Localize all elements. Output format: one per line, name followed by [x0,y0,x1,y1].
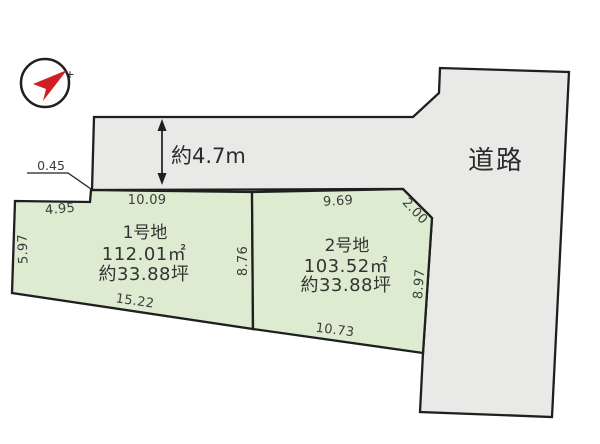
road-label: 道路 [468,146,524,176]
dim-p1-left: 5.97 [15,234,31,265]
parcel-2-name: 2号地 [325,236,370,256]
parcel-1-area-tsubo: 約33.88坪 [98,264,189,285]
parcel-2-area-m2: 103.52㎡ [304,255,388,277]
site-plan-svg: + 約4.7m 道路 0.45 4.95 10.09 5.97 8.76 15.… [0,0,600,444]
road-width-label: 約4.7m [171,144,246,168]
step-leader-line [27,173,91,189]
dim-p1-topleft: 4.95 [44,201,75,219]
dim-p1-right: 8.76 [236,246,251,276]
diagram-root: + 約4.7m 道路 0.45 4.95 10.09 5.97 8.76 15.… [12,59,569,417]
north-arrow-icon: + [21,59,75,107]
dim-p1-top: 10.09 [128,193,167,208]
parcel-1-area-m2: 112.01㎡ [102,243,186,265]
dim-step: 0.45 [37,158,65,173]
dim-p2-right: 8.97 [411,268,428,299]
parcel-1-name: 1号地 [123,223,168,243]
parcel-2-area-tsubo: 約33.88坪 [300,275,391,296]
land-plot-diagram: + 約4.7m 道路 0.45 4.95 10.09 5.97 8.76 15.… [0,0,600,444]
dim-p2-top: 9.69 [323,193,354,210]
compass-tip-mark: + [65,68,74,81]
